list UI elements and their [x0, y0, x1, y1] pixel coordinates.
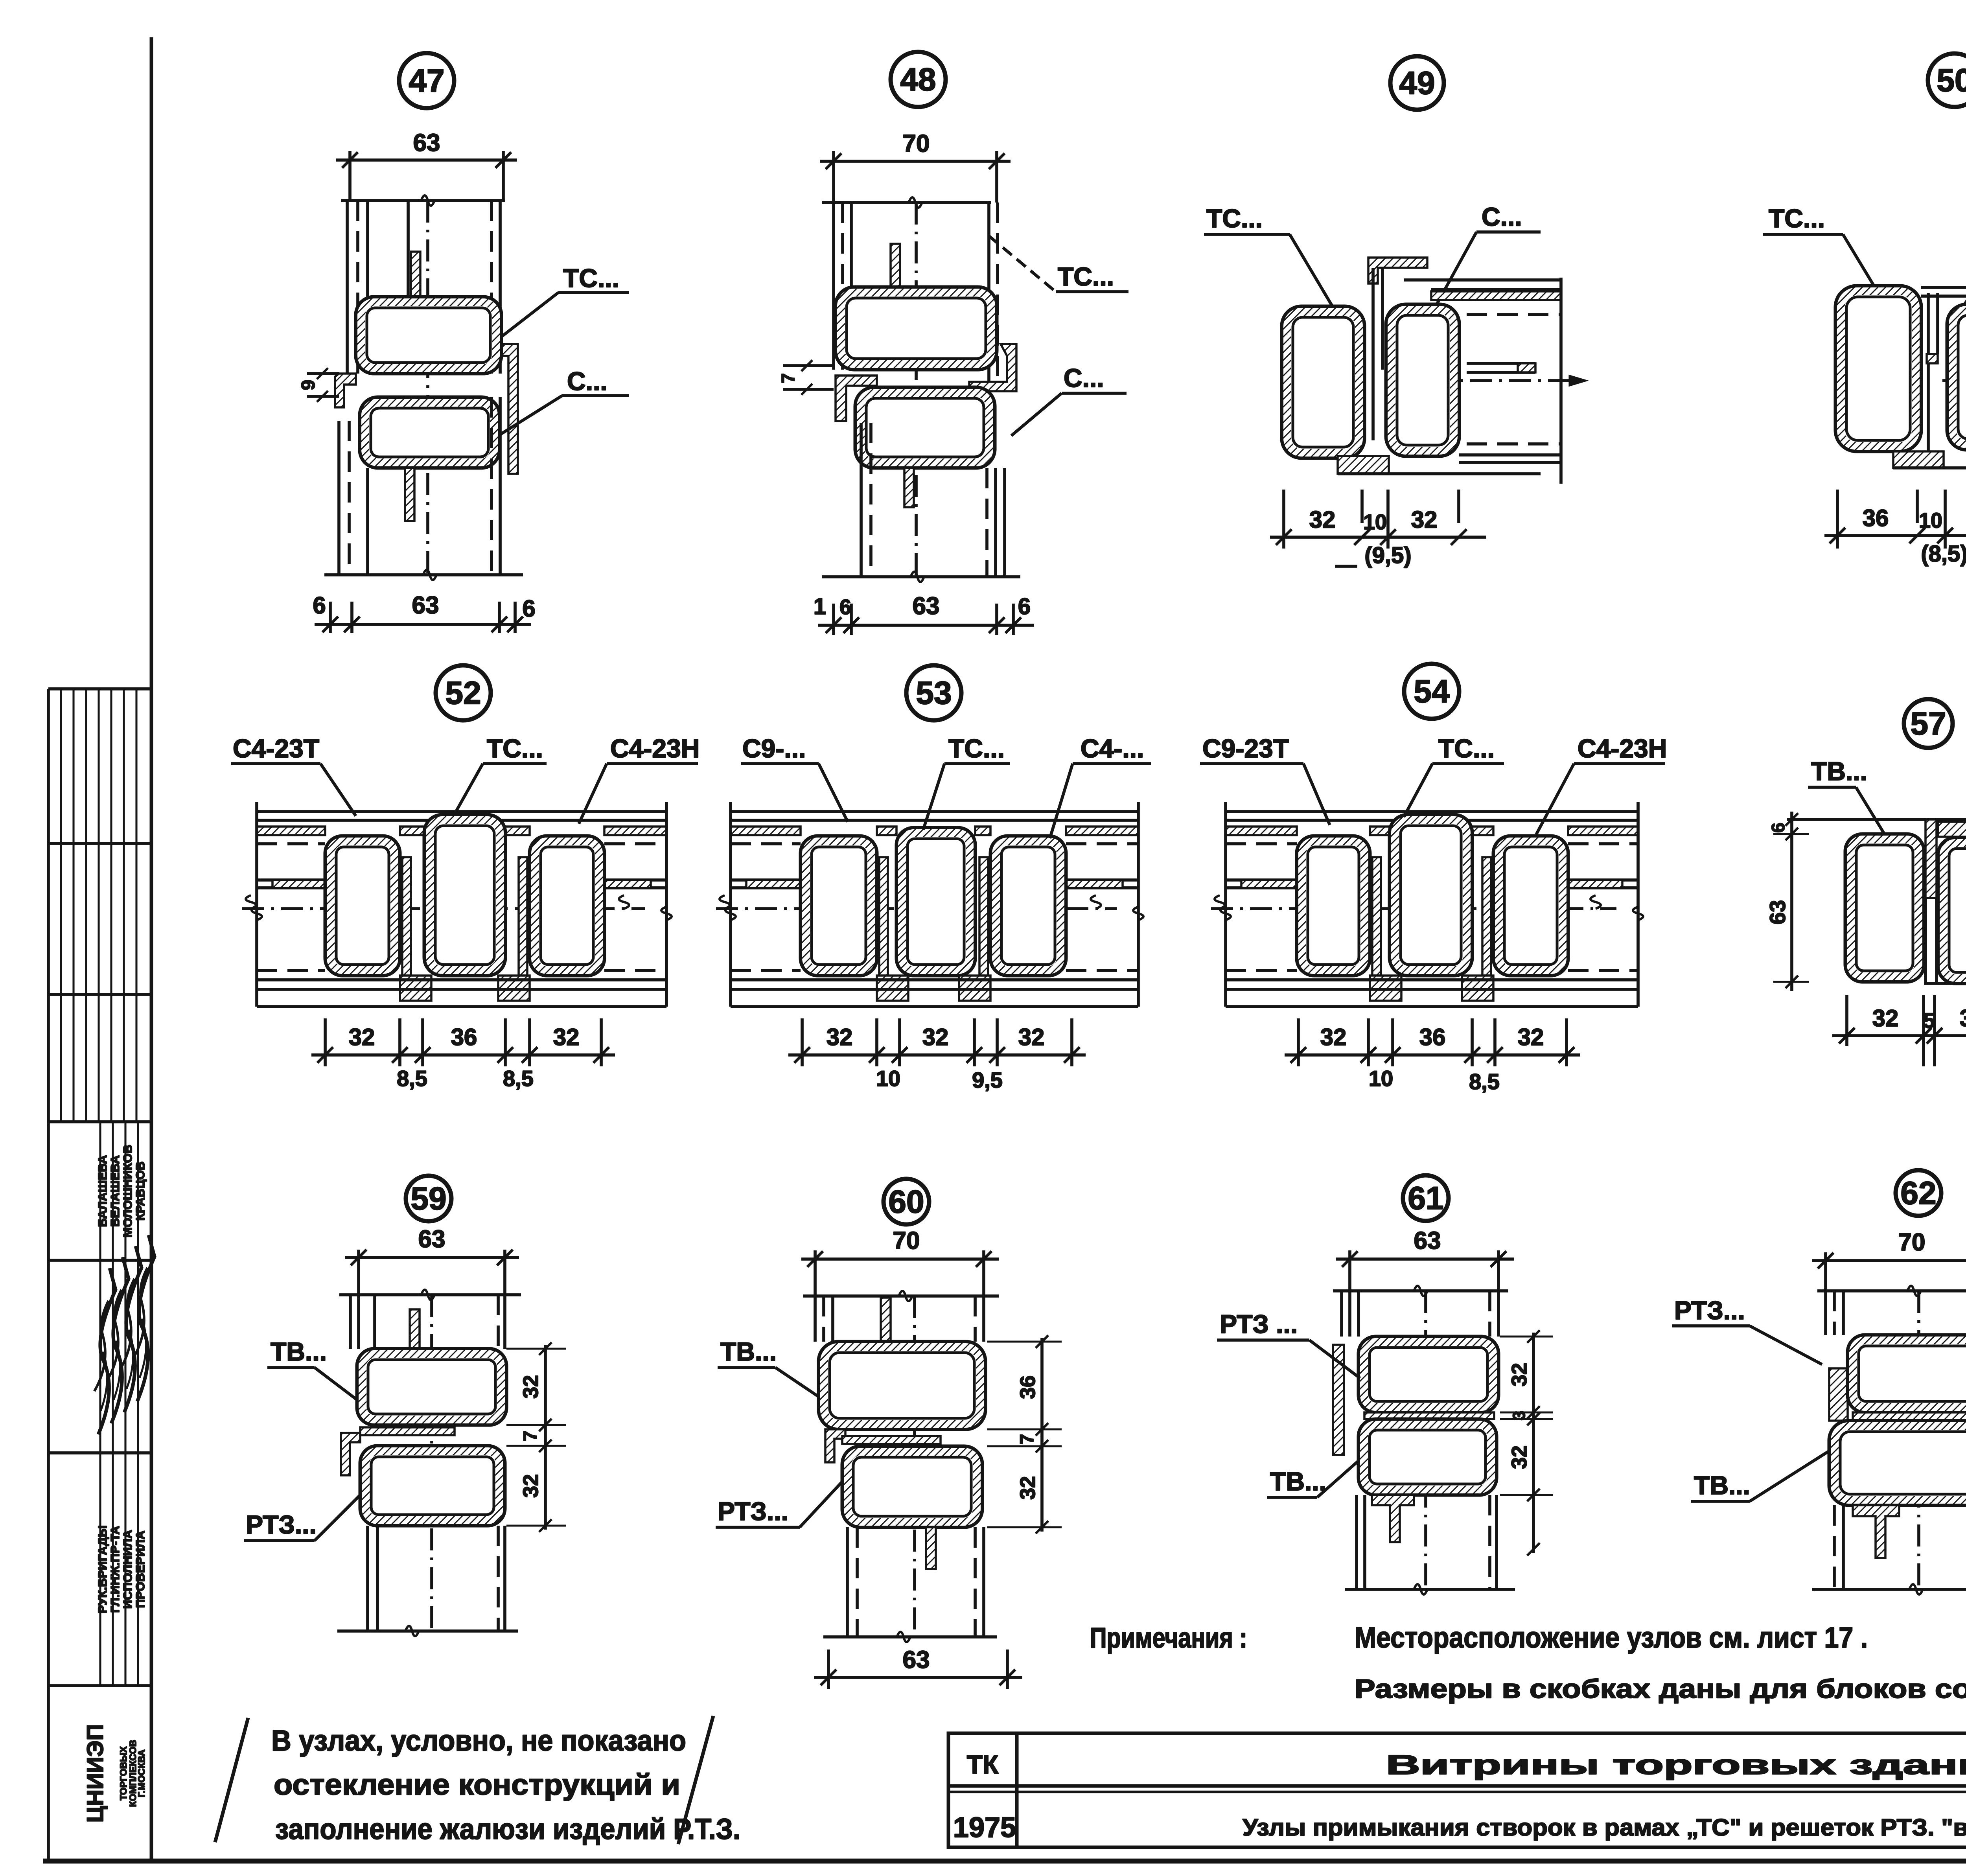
svg-text:ТС...: ТС... — [487, 734, 543, 763]
svg-text:КРАВЦОВ: КРАВЦОВ — [133, 1162, 147, 1221]
svg-text:РТЗ...: РТЗ... — [1674, 1296, 1745, 1325]
svg-text:ТВ...: ТВ... — [271, 1337, 327, 1366]
svg-text:Витрины торговых зданий.: Витрины торговых зданий. — [1386, 1749, 1966, 1780]
svg-text:РТЗ...: РТЗ... — [718, 1497, 788, 1526]
svg-text:57: 57 — [1910, 706, 1946, 742]
svg-text:ТОРГОВЫХ: ТОРГОВЫХ — [118, 1746, 129, 1801]
svg-text:С9-...: С9-... — [742, 734, 806, 763]
svg-text:заполнение жалюзи изделий Р.Т.: заполнение жалюзи изделий Р.Т.З. — [275, 1813, 740, 1845]
svg-text:32: 32 — [1016, 1476, 1040, 1500]
svg-text:ТВ...: ТВ... — [1811, 757, 1867, 786]
svg-text:32: 32 — [519, 1474, 543, 1498]
svg-text:МОЛОШНИКОВ: МОЛОШНИКОВ — [121, 1145, 134, 1237]
svg-text:ТВ...: ТВ... — [1270, 1467, 1326, 1496]
svg-text:1: 1 — [814, 594, 826, 619]
svg-text:ТС...: ТС... — [1438, 734, 1495, 763]
svg-text:32: 32 — [1320, 1024, 1347, 1050]
svg-text:3: 3 — [1509, 1411, 1529, 1420]
svg-text:70: 70 — [893, 1227, 920, 1254]
svg-text:6: 6 — [1768, 823, 1788, 833]
svg-text:ТВ...: ТВ... — [720, 1337, 777, 1366]
svg-text:10: 10 — [1363, 510, 1387, 534]
svg-text:8,5: 8,5 — [503, 1066, 534, 1091]
svg-text:С4-23Н: С4-23Н — [610, 734, 700, 763]
svg-text:61: 61 — [1408, 1180, 1443, 1216]
svg-text:С4-23Н: С4-23Н — [1578, 734, 1667, 763]
svg-text:50: 50 — [1937, 63, 1966, 98]
svg-text:70: 70 — [1898, 1229, 1926, 1256]
svg-text:С9-23Т: С9-23Т — [1202, 734, 1289, 763]
svg-text:9: 9 — [298, 380, 319, 390]
svg-text:7: 7 — [520, 1431, 541, 1442]
svg-text:С4-23Т: С4-23Т — [233, 734, 319, 763]
svg-text:49: 49 — [1399, 65, 1435, 101]
svg-text:В узлах, условно, не показано: В узлах, условно, не показано — [271, 1724, 686, 1757]
svg-text:РТЗ ...: РТЗ ... — [1220, 1309, 1298, 1338]
svg-text:32: 32 — [1872, 1005, 1899, 1031]
svg-text:54: 54 — [1414, 674, 1450, 709]
svg-text:32: 32 — [1018, 1024, 1045, 1050]
svg-text:70: 70 — [903, 130, 930, 157]
svg-text:С...: С... — [1482, 202, 1522, 231]
svg-text:ГЛ.ИНЖ.ПР-ТА: ГЛ.ИНЖ.ПР-ТА — [108, 1526, 122, 1613]
svg-text:ТС...: ТС... — [1769, 204, 1825, 233]
svg-text:ТС...: ТС... — [1058, 262, 1114, 291]
svg-text:6: 6 — [839, 595, 851, 619]
svg-text:9,5: 9,5 — [972, 1068, 1003, 1092]
svg-text:10: 10 — [876, 1066, 900, 1091]
svg-text:ЦНИИЭП: ЦНИИЭП — [83, 1724, 108, 1823]
svg-text:С4-...: С4-... — [1081, 734, 1144, 763]
svg-text:остекление конструкций и: остекление конструкций и — [274, 1768, 680, 1801]
svg-text:РУК.БРИГАДЫ: РУК.БРИГАДЫ — [96, 1525, 109, 1613]
svg-text:Примечания :: Примечания : — [1090, 1622, 1247, 1654]
svg-text:ТВ...: ТВ... — [1694, 1471, 1750, 1500]
svg-text:ТС...: ТС... — [1206, 204, 1263, 233]
svg-text:10: 10 — [1369, 1066, 1393, 1091]
svg-text:7: 7 — [1017, 1434, 1038, 1445]
svg-text:63: 63 — [913, 593, 940, 620]
svg-text:32: 32 — [1960, 1005, 1966, 1031]
svg-text:60: 60 — [888, 1184, 924, 1220]
svg-text:ТС...: ТС... — [948, 734, 1005, 763]
svg-text:БЕЛАШЕВА: БЕЛАШЕВА — [108, 1155, 122, 1227]
svg-text:ТС...: ТС... — [563, 263, 619, 293]
svg-text:59: 59 — [411, 1181, 446, 1217]
svg-text:ТК: ТК — [967, 1750, 999, 1779]
svg-text:Размеры в скобках даны для бло: Размеры в скобках даны для блоков со ств… — [1355, 1674, 1966, 1704]
svg-text:47: 47 — [409, 63, 444, 99]
svg-text:32: 32 — [1508, 1363, 1531, 1386]
svg-text:62: 62 — [1900, 1175, 1936, 1211]
svg-text:ИСПОЛНИЛА: ИСПОЛНИЛА — [121, 1530, 134, 1609]
svg-text:10: 10 — [1919, 509, 1942, 532]
svg-text:63: 63 — [413, 129, 440, 156]
svg-text:32: 32 — [922, 1024, 949, 1050]
svg-text:32: 32 — [553, 1024, 580, 1050]
svg-text:(9,5): (9,5) — [1364, 543, 1411, 568]
svg-text:С...: С... — [1064, 363, 1104, 392]
svg-text:63: 63 — [418, 1226, 445, 1253]
svg-text:5: 5 — [1923, 1009, 1935, 1033]
svg-text:48: 48 — [900, 62, 936, 98]
svg-text:6: 6 — [522, 595, 535, 622]
svg-text:(8,5): (8,5) — [1921, 541, 1966, 567]
svg-text:36: 36 — [451, 1024, 477, 1050]
svg-text:32: 32 — [1508, 1445, 1531, 1469]
svg-text:36: 36 — [1863, 505, 1889, 531]
svg-text:8,5: 8,5 — [1469, 1069, 1500, 1094]
svg-text:36: 36 — [1419, 1024, 1446, 1050]
svg-text:32: 32 — [519, 1375, 543, 1399]
svg-text:8,5: 8,5 — [397, 1066, 427, 1091]
svg-text:32: 32 — [1309, 506, 1336, 533]
svg-text:Месторасположение узлов см. ли: Месторасположение узлов см. лист 17 . — [1355, 1621, 1868, 1654]
svg-text:36: 36 — [1016, 1375, 1040, 1399]
svg-text:63: 63 — [412, 592, 439, 619]
svg-text:63: 63 — [1765, 900, 1790, 924]
svg-text:63: 63 — [1414, 1227, 1441, 1254]
svg-text:32: 32 — [1411, 506, 1438, 533]
svg-text:7: 7 — [778, 373, 798, 383]
svg-text:Узлы примыкания створок в рама: Узлы примыкания створок в рамах „ТС" и р… — [1243, 1814, 1966, 1841]
svg-text:БАЛАШЕВА: БАЛАШЕВА — [96, 1155, 109, 1227]
svg-text:32: 32 — [349, 1024, 375, 1050]
svg-text:РТЗ...: РТЗ... — [246, 1510, 317, 1539]
svg-text:63: 63 — [903, 1646, 930, 1673]
svg-text:32: 32 — [827, 1024, 853, 1050]
svg-text:53: 53 — [916, 675, 952, 711]
svg-text:6: 6 — [1018, 594, 1031, 619]
svg-text:52: 52 — [445, 675, 481, 711]
svg-text:С...: С... — [567, 366, 607, 396]
svg-text:1975: 1975 — [953, 1812, 1016, 1843]
svg-text:6: 6 — [313, 592, 326, 619]
svg-text:ПРОВЕРИЛА: ПРОВЕРИЛА — [133, 1531, 147, 1608]
svg-text:32: 32 — [1518, 1024, 1544, 1050]
svg-text:Г.МОСКВА: Г.МОСКВА — [136, 1749, 147, 1797]
